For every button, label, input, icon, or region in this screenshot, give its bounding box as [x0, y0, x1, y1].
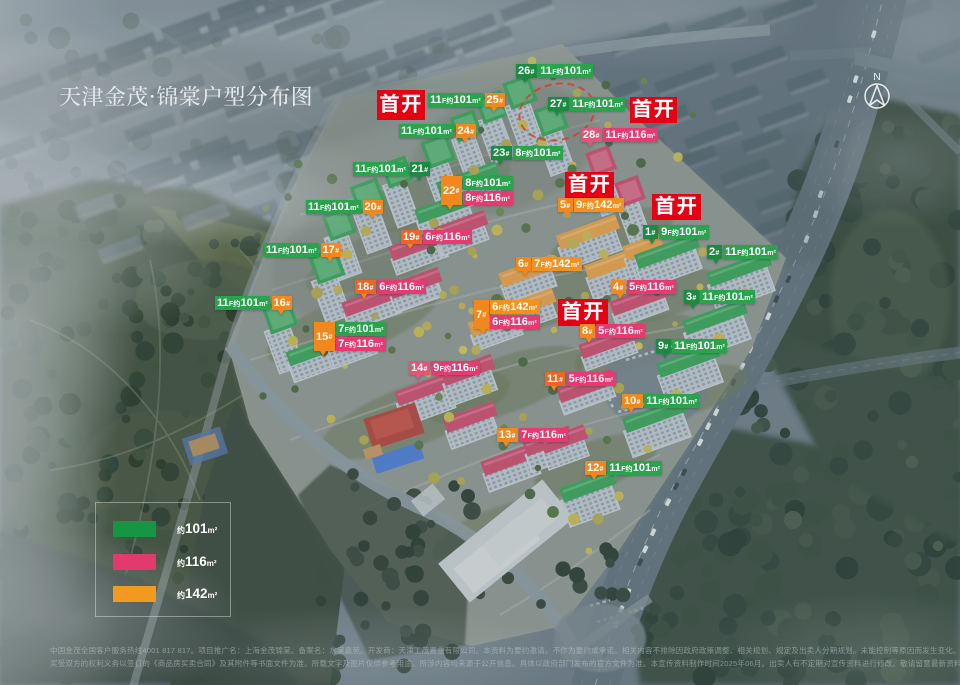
svg-text:N: N — [873, 71, 881, 83]
